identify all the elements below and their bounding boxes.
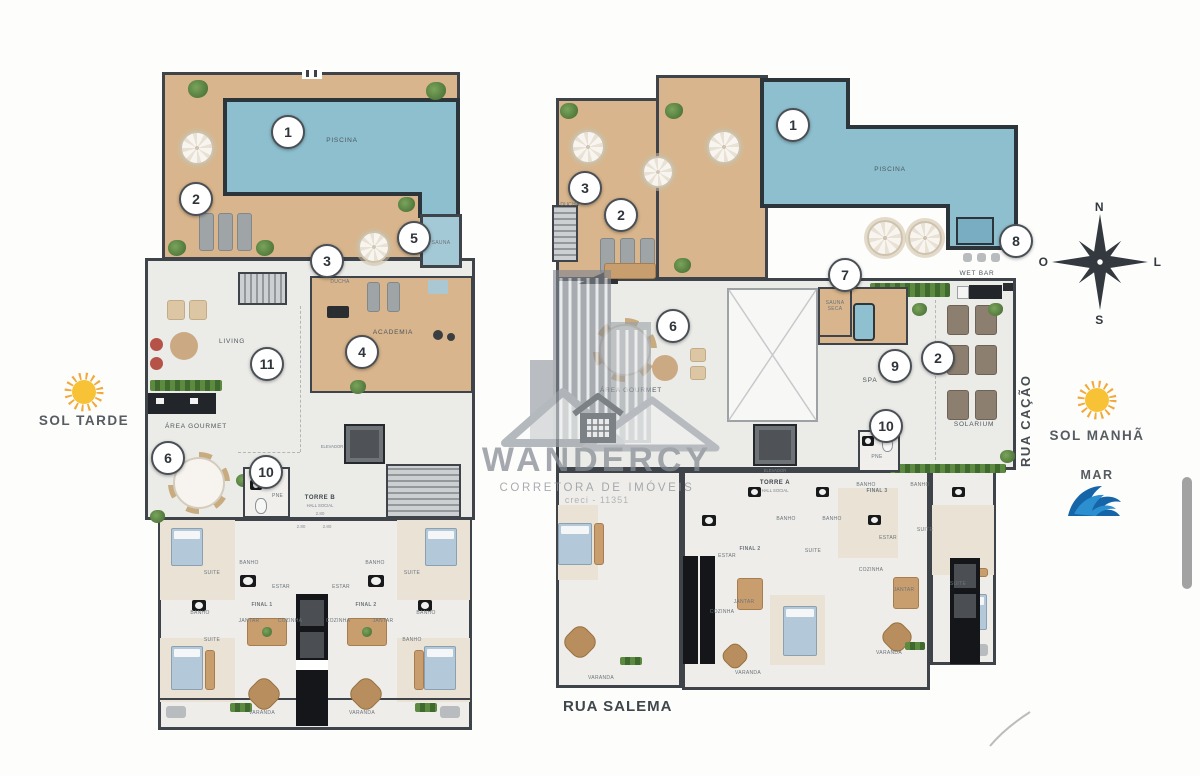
bed <box>558 523 592 565</box>
unit-label-final1: FINAL 1 <box>252 602 273 608</box>
badge-pne-b: 10 <box>249 455 283 489</box>
hall-social-label: HALL SOCIAL <box>762 488 789 493</box>
doormat <box>166 706 186 718</box>
room-label-suite: SUITE <box>204 570 220 576</box>
bed <box>171 646 203 690</box>
wardrobe <box>205 650 215 690</box>
umbrella-table <box>571 130 605 164</box>
planter-hedge <box>905 642 925 650</box>
solarium-lounger <box>947 390 969 420</box>
bar-stool <box>963 253 972 262</box>
bar-appliance <box>1003 283 1013 291</box>
bar-fridge <box>957 286 969 299</box>
room-label-spa: SPA <box>863 377 878 384</box>
armchair <box>690 366 706 380</box>
room-label-cozinha: COZINHA <box>859 567 884 573</box>
sun-icon <box>1081 384 1113 416</box>
unit-label-final3: FINAL 3 <box>867 488 888 494</box>
dashed-guide <box>238 452 300 453</box>
room-label-area-gourmet: ÁREA GOURMET <box>165 423 227 430</box>
room-label-sauna: SAUNA <box>432 240 451 246</box>
dimension-label: 2.80 <box>323 524 332 529</box>
bed <box>424 646 456 690</box>
bed <box>783 606 817 656</box>
room-label-elevador: ELEVADOR <box>321 444 344 449</box>
room-label-living: LIVING <box>219 338 245 345</box>
umbrella-table <box>358 231 390 263</box>
badge-ducha-b: 3 <box>310 244 344 278</box>
room-label-banho: BANHO <box>910 482 929 488</box>
dashed-guide <box>935 300 936 460</box>
room-label-varanda: VARANDA <box>735 670 761 676</box>
room-label-elevador: ELEVADOR <box>764 468 787 473</box>
badge-ducha-a: 3 <box>568 171 602 205</box>
stairs <box>552 205 578 262</box>
room-label-suite: BANHO <box>402 637 421 643</box>
room-label-cozinha: COZINHA <box>326 618 351 624</box>
sink <box>156 398 164 404</box>
room-label-banho: BANHO <box>416 610 435 616</box>
room-label-jantar: JANTAR <box>734 599 755 605</box>
bath-fixture <box>368 575 384 587</box>
lounger <box>218 213 233 251</box>
wave-icon <box>1068 486 1121 516</box>
umbrella-table <box>707 130 741 164</box>
bath-fixture <box>240 575 256 587</box>
room-label-wet-bar: WET BAR <box>959 270 994 277</box>
badge-living-b: 11 <box>250 347 284 381</box>
spa-tub <box>853 303 875 341</box>
room-label-varanda: VARANDA <box>588 675 614 681</box>
wet-bar-counter <box>969 285 1002 299</box>
room-label-suite: SUITE <box>917 527 933 533</box>
bath-fixture <box>952 487 965 497</box>
room-label-estar: ESTAR <box>272 584 290 590</box>
room-label-pne: PNE <box>272 493 283 499</box>
floor-plan-canvas: WANDERCY CORRETORA DE IMÓVEIS creci - 11… <box>0 0 1200 776</box>
room-label-banho: BANHO <box>239 560 258 566</box>
elevator-car <box>753 424 797 466</box>
room-label-suite: SUITE <box>805 548 821 554</box>
badge-academia-b: 4 <box>345 335 379 369</box>
room-label-suite: SUITE <box>204 637 220 643</box>
compass-rose-icon <box>1052 214 1148 310</box>
room-label-piscina: PISCINA <box>326 137 358 144</box>
pool-gate <box>302 68 322 79</box>
bed <box>425 528 457 566</box>
room-label-pne: PNE <box>871 454 882 460</box>
room-label-area-gourmet: ÁREA GOURMET <box>600 387 662 394</box>
rua-cacao-label: RUA CAÇÃO <box>1018 368 1034 474</box>
room-label-banho: BANHO <box>365 560 384 566</box>
elevator-void <box>727 288 818 422</box>
pouf <box>150 338 163 351</box>
unit-label-final2: FINAL 2 <box>356 602 377 608</box>
room-label-ducha: DUCHA <box>330 279 349 285</box>
solarium-lounger <box>947 305 969 335</box>
elevator-car <box>344 424 385 464</box>
wardrobe <box>414 650 424 690</box>
room-label-banho: BANHO <box>190 610 209 616</box>
planter-hedge <box>150 380 222 391</box>
treadmill <box>367 282 380 312</box>
bar-stool <box>977 253 986 262</box>
hall-social-label: HALL SOCIAL <box>307 503 334 508</box>
room-label-estar: ESTAR <box>332 584 350 590</box>
room-label-sauna-seca: SAUNA SECA <box>822 300 848 312</box>
badge-saunaseca-a: 7 <box>828 258 862 292</box>
cooktop <box>190 398 198 404</box>
badge-wetbar-a: 8 <box>999 224 1033 258</box>
badge-gourmet-b: 6 <box>151 441 185 475</box>
dining-table <box>599 324 651 376</box>
umbrella-table <box>908 221 942 255</box>
badge-spa-a: 9 <box>878 349 912 383</box>
doormat <box>440 706 460 718</box>
bath-fixture <box>868 515 881 525</box>
elevator-shaft <box>683 556 698 664</box>
elevator-shaft <box>950 558 980 664</box>
treadmill <box>387 282 400 312</box>
room-label-solarium: SOLARIUM <box>954 421 994 428</box>
compass-n-label: N <box>1092 200 1108 214</box>
mar-label: MAR <box>1067 468 1127 482</box>
umbrella-table <box>642 156 674 188</box>
badge-solarium-a: 2 <box>921 341 955 375</box>
wardrobe <box>594 523 604 565</box>
tower-a-label: TORRE A <box>760 480 790 486</box>
dimension-label: 2.80 <box>316 511 325 516</box>
dashed-guide <box>300 306 301 452</box>
sol-manha-label: SOL MANHÃ <box>1047 428 1147 443</box>
room-label-banho: BANHO <box>776 516 795 522</box>
rua-salema-label: RUA SALEMA <box>563 698 703 715</box>
pne-fixture <box>862 436 874 446</box>
room-label-jantar: JANTAR <box>239 618 260 624</box>
badge-gourmet-a: 6 <box>656 309 690 343</box>
dining-table <box>737 578 763 610</box>
lounger <box>237 213 252 251</box>
badge-piscina-b: 1 <box>271 115 305 149</box>
bar-stool <box>991 253 1000 262</box>
weight-ball <box>433 330 443 340</box>
compass-l-label: L <box>1150 255 1166 269</box>
gym-mat <box>428 280 448 294</box>
compass-o-label: O <box>1036 255 1052 269</box>
solarium-lounger <box>975 345 997 375</box>
gourmet-table <box>604 263 656 279</box>
room-label-estar: ESTAR <box>879 535 897 541</box>
sun-icon <box>68 376 100 408</box>
tower-b-label: TORRE B <box>305 495 335 501</box>
weight-ball <box>447 333 455 341</box>
bench <box>327 306 349 318</box>
room-label-jantar: JANTAR <box>894 587 915 593</box>
stairs <box>386 464 461 518</box>
badge-sauna-b: 5 <box>397 221 431 255</box>
planter-hedge <box>890 464 1006 473</box>
compass-s-label: S <box>1092 313 1108 327</box>
bath-fixture <box>816 487 829 497</box>
badge-deck-b: 2 <box>179 182 213 216</box>
rug <box>170 332 198 360</box>
room-label-varanda: VARANDA <box>249 710 275 716</box>
pool-step <box>957 218 993 244</box>
room-label-piscina: PISCINA <box>874 166 906 173</box>
room-label-banho: BANHO <box>822 516 841 522</box>
bed <box>171 528 203 566</box>
room-label-cozinha: COZINHA <box>710 609 735 615</box>
unit-label-final2: FINAL 2 <box>740 546 761 552</box>
sauna-seca-room <box>818 287 852 337</box>
armchair <box>690 348 706 362</box>
armchair <box>167 300 185 320</box>
badge-deck-a: 2 <box>604 198 638 232</box>
elevator-shaft <box>296 594 328 726</box>
solarium-lounger <box>975 390 997 420</box>
planter-hedge <box>415 703 437 712</box>
pouf <box>150 357 163 370</box>
dimension-label: 2.80 <box>297 524 306 529</box>
room-label-cozinha: COZINHA <box>278 618 303 624</box>
photo-artifact-line <box>990 712 1030 746</box>
armchair <box>189 300 207 320</box>
bath-fixture <box>748 487 761 497</box>
room-label-suite: SUITE <box>950 581 966 587</box>
badge-piscina-a: 1 <box>776 108 810 142</box>
planter-hedge <box>620 657 642 665</box>
umbrella-table <box>867 220 903 256</box>
dining-table <box>893 577 919 609</box>
room-label-banho: BANHO <box>856 482 875 488</box>
room-label-jantar: JANTAR <box>373 618 394 624</box>
lounger <box>199 213 214 251</box>
room-label-varanda: VARANDA <box>876 650 902 656</box>
toilet <box>255 498 267 514</box>
rug <box>652 355 678 381</box>
bath-fixture <box>702 515 716 526</box>
room-label-academia: ACADEMIA <box>373 329 413 336</box>
stairs <box>238 272 287 305</box>
scrollbar-thumb[interactable] <box>1182 477 1192 589</box>
room-label-estar: ESTAR <box>718 553 736 559</box>
room-label-varanda: VARANDA <box>349 710 375 716</box>
room-label-suite: SUITE <box>404 570 420 576</box>
sol-tarde-label: SOL TARDE <box>36 413 132 428</box>
badge-pne-a: 10 <box>869 409 903 443</box>
umbrella-table <box>180 131 214 165</box>
